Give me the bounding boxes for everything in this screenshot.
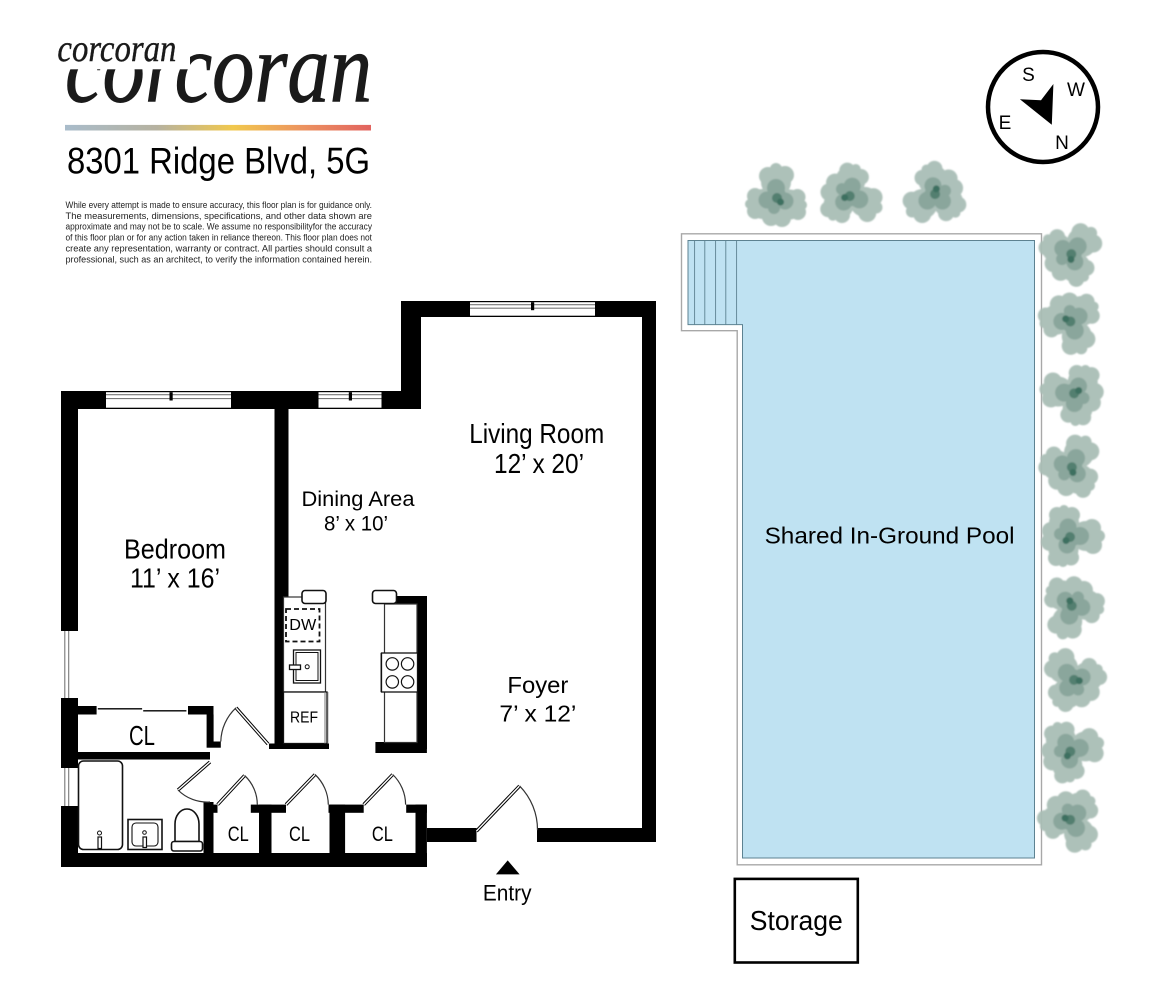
svg-text:approximate and may not be to: approximate and may not be to scale. We … xyxy=(66,222,373,232)
svg-text:of this floor plan or for any: of this floor plan or for any action tak… xyxy=(66,233,373,243)
svg-text:N: N xyxy=(1055,133,1069,154)
svg-text:11’ x 16’: 11’ x 16’ xyxy=(130,563,220,594)
svg-text:The measurements, dimensions,: The measurements, dimensions, specificat… xyxy=(66,211,373,221)
svg-text:CL: CL xyxy=(289,823,310,846)
svg-text:W: W xyxy=(1067,80,1085,101)
svg-text:Living Room: Living Room xyxy=(469,418,604,449)
svg-text:Storage: Storage xyxy=(750,905,843,936)
svg-text:E: E xyxy=(999,113,1012,134)
svg-text:8’ x 10’: 8’ x 10’ xyxy=(324,513,388,536)
svg-text:While every attempt is made to: While every attempt is made to ensure ac… xyxy=(66,200,373,210)
svg-text:Foyer: Foyer xyxy=(507,672,568,698)
svg-text:CL: CL xyxy=(372,823,393,846)
svg-text:CL: CL xyxy=(228,823,249,846)
svg-text:professional, such as an archi: professional, such as an architect, to v… xyxy=(66,254,373,264)
svg-text:Bedroom: Bedroom xyxy=(124,534,226,565)
svg-text:Entry: Entry xyxy=(483,881,532,906)
svg-text:CL: CL xyxy=(129,720,155,751)
svg-text:S: S xyxy=(1022,65,1035,86)
svg-text:DW: DW xyxy=(289,617,317,634)
svg-text:Dining Area: Dining Area xyxy=(302,488,415,511)
svg-text:12’ x 20’: 12’ x 20’ xyxy=(494,448,584,479)
svg-text:Shared In-Ground Pool: Shared In-Ground Pool xyxy=(765,523,1015,549)
svg-text:REF: REF xyxy=(290,710,318,727)
svg-text:7’ x 12’: 7’ x 12’ xyxy=(499,701,576,727)
svg-text:create any representation, war: create any representation, warranty or c… xyxy=(66,244,373,254)
svg-text:corcoran: corcoran xyxy=(57,28,176,70)
svg-text:8301 Ridge Blvd, 5G: 8301 Ridge Blvd, 5G xyxy=(67,140,370,181)
